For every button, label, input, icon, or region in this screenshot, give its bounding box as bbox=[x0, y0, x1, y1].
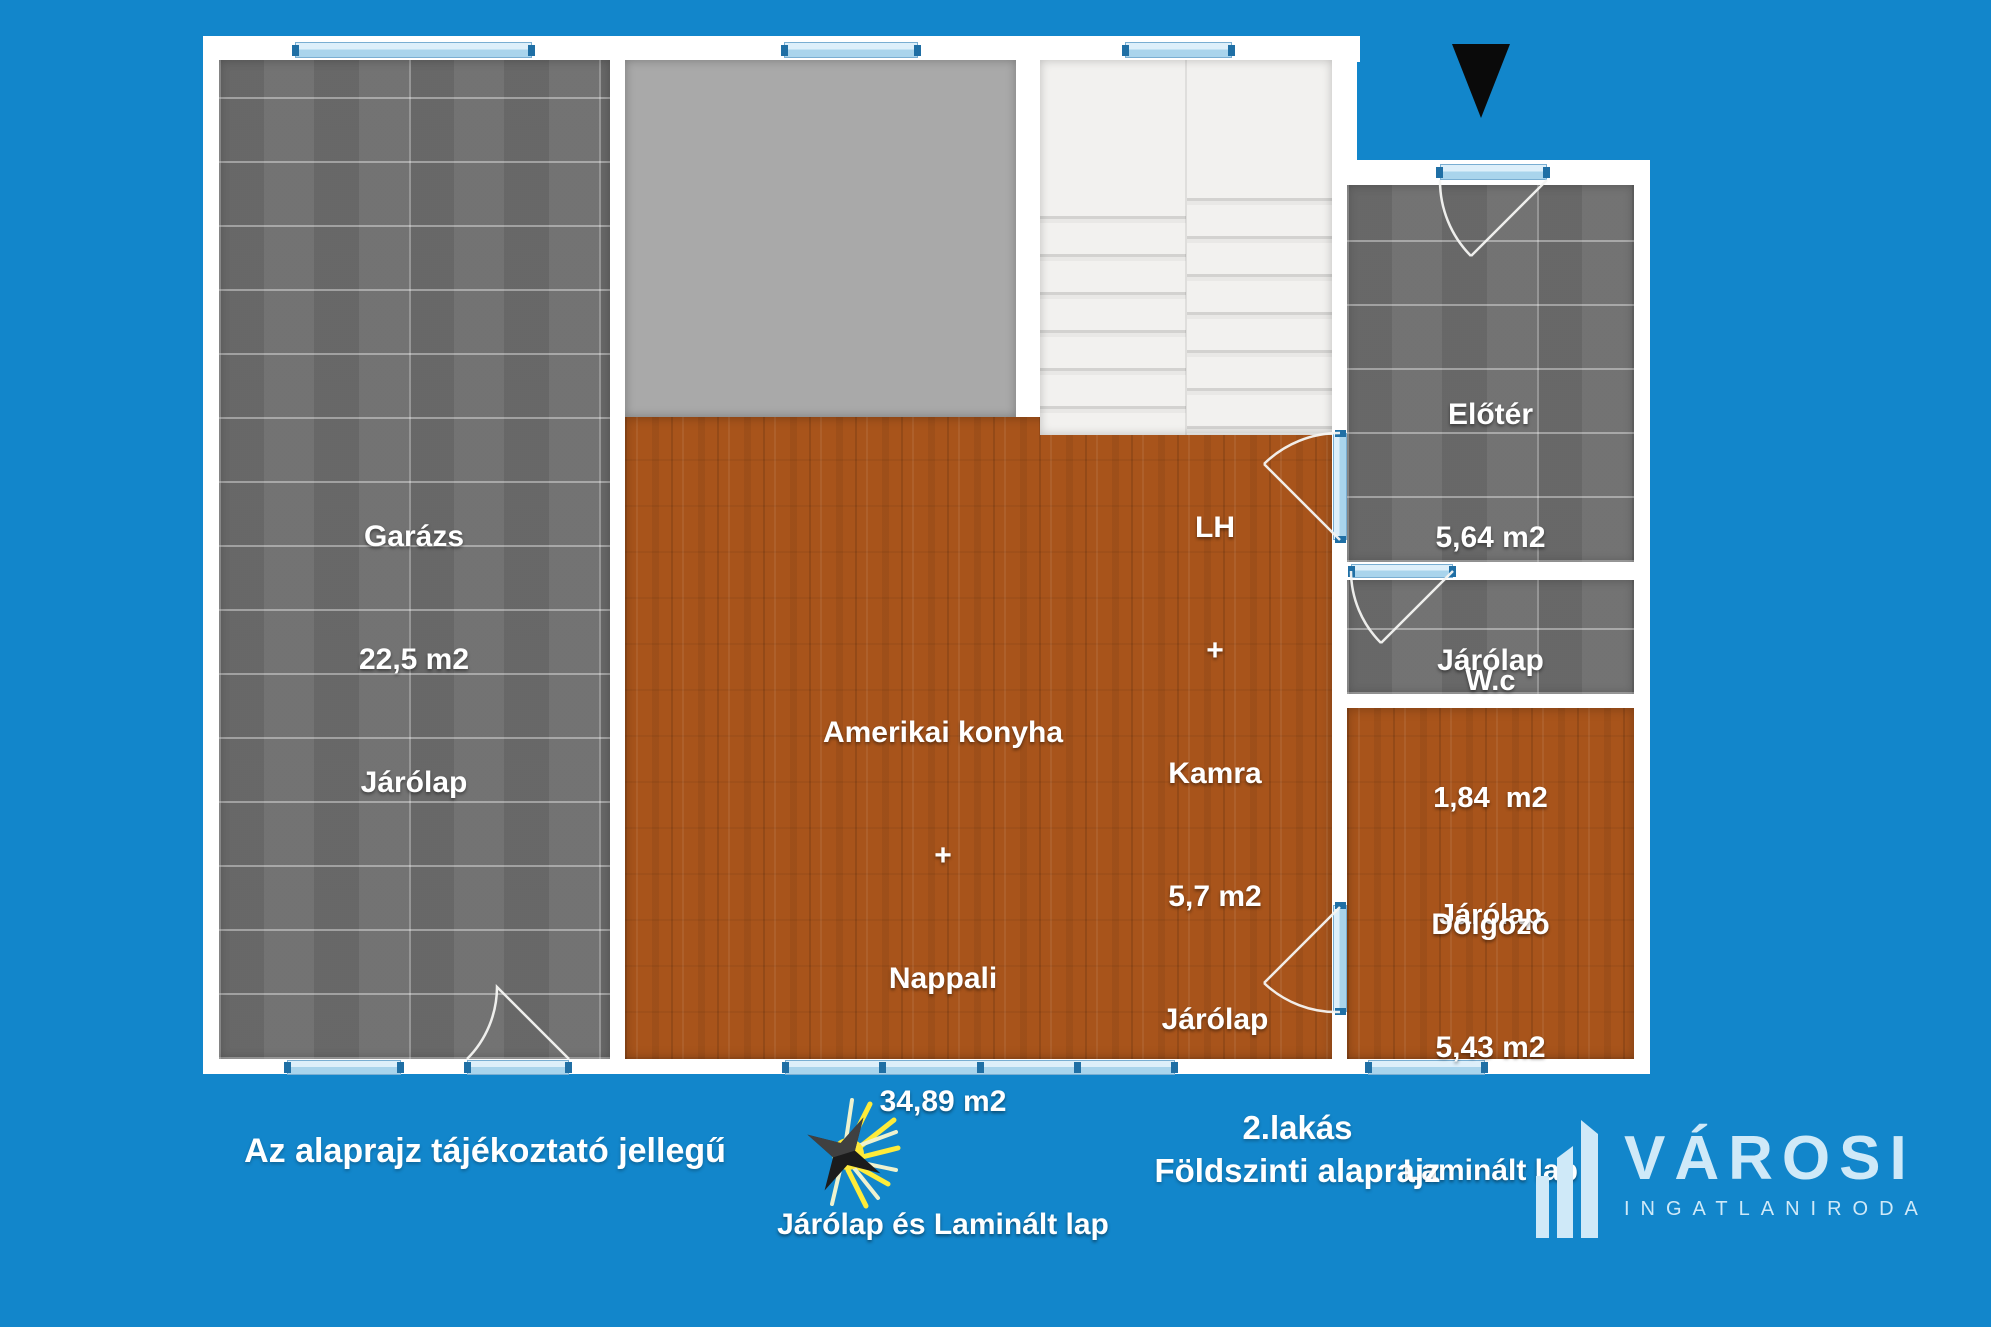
door-cap bbox=[1436, 167, 1443, 178]
room-label-lh-kamra: LH + Kamra 5,7 m2 Járólap bbox=[1090, 425, 1340, 1122]
window-cap bbox=[914, 45, 921, 56]
room-name2: Kamra bbox=[1090, 753, 1340, 794]
window-cap bbox=[1228, 45, 1235, 56]
logo-brand: VÁROSI bbox=[1624, 1124, 1929, 1194]
room-area: 1,84 m2 bbox=[1347, 779, 1634, 818]
window-stairs-top bbox=[1125, 42, 1232, 58]
window-cap bbox=[781, 45, 788, 56]
wall-terrace-stairs-gap bbox=[1016, 60, 1040, 417]
room-floor-type: Járólap bbox=[214, 762, 614, 803]
room-name-connector: + bbox=[1090, 630, 1340, 671]
floor-plan: Garázs 22,5 m2 Járólap Amerikai konyha +… bbox=[0, 0, 1991, 1280]
stair-column-left bbox=[1040, 60, 1186, 435]
window-cap bbox=[528, 45, 535, 56]
compass-star-icon bbox=[786, 1096, 902, 1212]
room-area: 5,43 m2 bbox=[1347, 1027, 1634, 1068]
window-cap bbox=[292, 45, 299, 56]
window-cap bbox=[284, 1062, 291, 1073]
door-cap bbox=[464, 1062, 471, 1073]
wall-wing-right bbox=[1634, 160, 1650, 1059]
room-label-garazs: Garázs 22,5 m2 Járólap bbox=[214, 434, 614, 885]
disclaimer-text: Az alaprajz tájékoztató jellegű bbox=[185, 1132, 785, 1171]
plan-title-line2: Földszinti alaprajz bbox=[1095, 1149, 1500, 1192]
room-floor-type: Járólap bbox=[1090, 999, 1340, 1040]
room-area: 5,7 m2 bbox=[1090, 876, 1340, 917]
logo-text: VÁROSI INGATLANIRODA bbox=[1624, 1110, 1929, 1221]
stair-steps bbox=[1040, 185, 1186, 435]
logo-subtitle: INGATLANIRODA bbox=[1624, 1198, 1929, 1221]
window-cap bbox=[397, 1062, 404, 1073]
staircase bbox=[1040, 60, 1332, 435]
window-cap bbox=[1122, 45, 1129, 56]
window-garage-top bbox=[295, 42, 532, 58]
room-name: Dolgozó bbox=[1347, 904, 1634, 945]
entry-door bbox=[1440, 164, 1547, 180]
room-name: Előtér bbox=[1347, 394, 1634, 435]
plan-title: 2.lakás Földszinti alaprajz bbox=[1095, 1106, 1500, 1192]
north-arrow-icon bbox=[1452, 44, 1510, 118]
floorplan-canvas: Garázs 22,5 m2 Járólap Amerikai konyha +… bbox=[0, 0, 1991, 1280]
door-cap bbox=[565, 1062, 572, 1073]
stair-steps bbox=[1187, 167, 1332, 435]
room-floor-type: Járólap és Laminált lap bbox=[643, 1204, 1243, 1245]
room-name: Garázs bbox=[214, 516, 614, 557]
stair-column-right bbox=[1187, 60, 1332, 435]
room-name: LH bbox=[1090, 507, 1340, 548]
logo-buildings-icon bbox=[1536, 1110, 1606, 1238]
terrace-area bbox=[625, 60, 1016, 417]
window-garage-bottom bbox=[287, 1060, 401, 1075]
door-cap bbox=[1543, 167, 1550, 178]
window-terrace-top bbox=[784, 42, 918, 58]
room-area: 22,5 m2 bbox=[214, 639, 614, 680]
garage-door bbox=[467, 1060, 569, 1075]
plan-title-line1: 2.lakás bbox=[1095, 1106, 1500, 1149]
agency-logo: VÁROSI INGATLANIRODA bbox=[1536, 1110, 1929, 1238]
room-name: W.c bbox=[1347, 662, 1634, 701]
room-area: 5,64 m2 bbox=[1347, 517, 1634, 558]
